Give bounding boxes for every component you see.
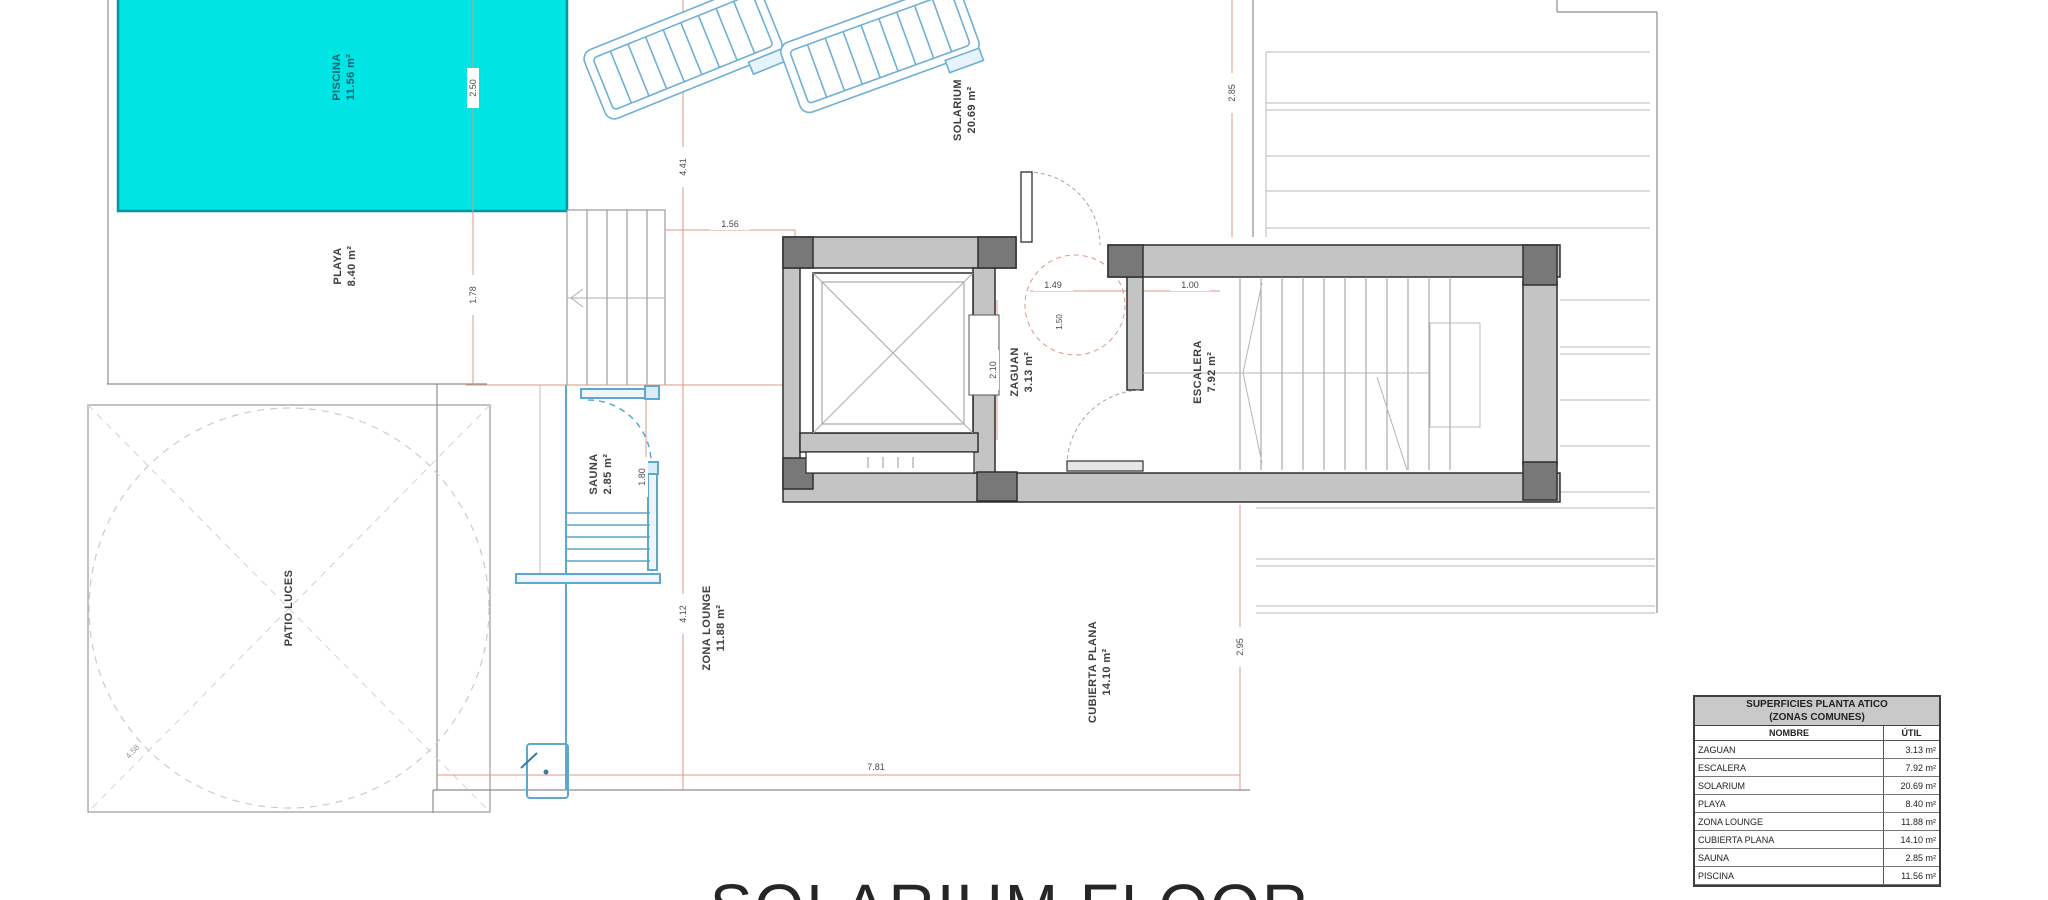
room-label-cubierta-plana: CUBIERTA PLANA 14.10 m² [1085, 617, 1115, 727]
cell-nombre: PLAYA [1695, 795, 1884, 813]
room-name: PLAYA [331, 211, 345, 321]
cell-nombre: ESCALERA [1695, 759, 1884, 777]
dim-terrace-top: 2.85 [1226, 73, 1238, 113]
outdoor-stairs [567, 210, 665, 385]
room-area: 3.13 m² [1022, 317, 1036, 427]
solarium-floor-plan: PISCINA 11.56 m² PLAYA 8.40 m² PATIO LUC… [0, 0, 2048, 900]
cell-nombre: CUBIERTA PLANA [1695, 831, 1884, 849]
cell-util: 11.88 m² [1884, 813, 1940, 831]
room-label-solarium: SOLARIUM 20.69 m² [950, 55, 980, 165]
dim-zona-lounge-height: 4.12 [677, 594, 689, 634]
roof-slat-pattern [1256, 52, 1655, 613]
cell-nombre: PISCINA [1695, 867, 1884, 885]
cell-nombre: ZONA LOUNGE [1695, 813, 1884, 831]
room-area: 11.88 m² [714, 573, 728, 683]
dim-turning-circle: 1.50 [1054, 302, 1066, 342]
cell-util: 11.56 m² [1884, 867, 1940, 885]
room-name: ZAGUAN [1008, 317, 1022, 427]
col-header-nombre: NOMBRE [1695, 726, 1884, 741]
room-label-zaguan: ZAGUAN 3.13 m² [1007, 317, 1037, 427]
legend-title: SUPERFICIES PLANTA ATICO (ZONAS COMUNES) [1695, 697, 1939, 726]
dim-solarium-height: 4.41 [677, 147, 689, 187]
dim-zaguan-width: 2.10 [987, 350, 999, 390]
dim-terrace-width: 7.81 [856, 761, 896, 773]
table-row: CUBIERTA PLANA14.10 m² [1695, 831, 1939, 849]
areas-legend-table: SUPERFICIES PLANTA ATICO (ZONAS COMUNES)… [1693, 695, 1941, 887]
sun-lounger-icon [581, 0, 789, 131]
cell-util: 8.40 m² [1884, 795, 1940, 813]
table-row: PLAYA8.40 m² [1695, 795, 1939, 813]
table-row: PISCINA11.56 m² [1695, 867, 1939, 885]
table-row: SOLARIUM20.69 m² [1695, 777, 1939, 795]
cell-util: 2.85 m² [1884, 849, 1940, 867]
cell-util: 14.10 m² [1884, 831, 1940, 849]
legend-title-line2: (ZONAS COMUNES) [1769, 712, 1865, 723]
dim-pool-depth: 2.50 [467, 68, 479, 108]
dim-solarium-width: 1.56 [710, 218, 750, 230]
room-name: ZONA LOUNGE [700, 573, 714, 683]
cell-util: 3.13 m² [1884, 741, 1940, 759]
room-name: PISCINA [330, 22, 344, 132]
table-row: ZONA LOUNGE11.88 m² [1695, 813, 1939, 831]
room-area: 7.92 m² [1205, 317, 1219, 427]
cell-nombre: ZAGUAN [1695, 741, 1884, 759]
table-row: SAUNA2.85 m² [1695, 849, 1939, 867]
room-label-piscina: PISCINA 11.56 m² [329, 22, 359, 132]
room-area: 20.69 m² [965, 55, 979, 165]
dim-sauna-width: 1.80 [636, 457, 648, 497]
room-label-patio-luces: PATIO LUCES [274, 553, 304, 663]
table-row: ZAGUAN3.13 m² [1695, 741, 1939, 759]
cell-nombre: SAUNA [1695, 849, 1884, 867]
room-name: PATIO LUCES [282, 553, 296, 663]
room-name: SOLARIUM [951, 55, 965, 165]
cell-util: 7.92 m² [1884, 759, 1940, 777]
room-name: ESCALERA [1191, 317, 1205, 427]
doors [1021, 172, 1143, 471]
floor-plan-title: SOLARIUM FLOOR [700, 870, 1320, 900]
cell-util: 20.69 m² [1884, 777, 1940, 795]
dim-playa-depth: 1.78 [467, 275, 479, 315]
room-label-sauna: SAUNA 2.85 m² [586, 419, 616, 529]
room-area: 2.85 m² [601, 419, 615, 529]
cell-nombre: SOLARIUM [1695, 777, 1884, 795]
legend-header-row: NOMBRE ÚTIL [1695, 726, 1939, 741]
dim-stair-entry: 1.00 [1170, 279, 1210, 291]
room-label-escalera: ESCALERA 7.92 m² [1190, 317, 1220, 427]
room-area: 11.56 m² [344, 22, 358, 132]
room-name: SAUNA [587, 419, 601, 529]
table-row: ESCALERA7.92 m² [1695, 759, 1939, 777]
room-area: 14.10 m² [1100, 617, 1114, 727]
room-label-zona-lounge: ZONA LOUNGE 11.88 m² [699, 573, 729, 683]
dim-zaguan-clear: 1.49 [1033, 279, 1073, 291]
room-label-playa: PLAYA 8.40 m² [330, 211, 360, 321]
col-header-util: ÚTIL [1884, 726, 1940, 741]
dim-cubierta-height: 2.95 [1234, 627, 1246, 667]
legend-title-line1: SUPERFICIES PLANTA ATICO [1746, 699, 1888, 710]
room-name: CUBIERTA PLANA [1086, 617, 1100, 727]
room-area: 8.40 m² [345, 211, 359, 321]
